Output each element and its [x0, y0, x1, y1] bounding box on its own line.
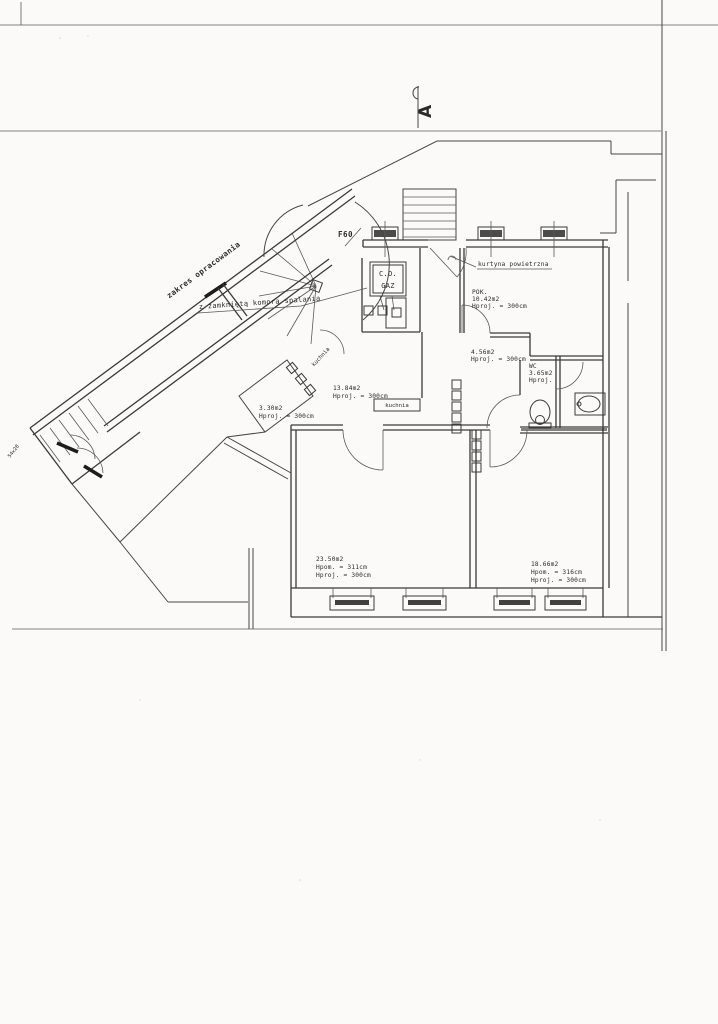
room-right-hpom: Hpom. = 316cm [531, 569, 582, 576]
doors [343, 248, 583, 470]
kitchen-label: 13.84m2 Hproj. = 300cm [333, 385, 388, 400]
wc-label: WC 3.65m2 Hproj. [529, 363, 553, 384]
wall-east [603, 240, 609, 588]
window-icon [330, 588, 374, 610]
plot-lines [72, 432, 291, 629]
room-right-label: 18.66m2 Hpom. = 316cm Hproj. = 300cm [531, 561, 586, 584]
room-left-area: 23.50m2 [316, 556, 344, 563]
flue-square [364, 306, 373, 315]
floor-plan-drawing: A [0, 0, 718, 1024]
diagonal-wing [30, 189, 355, 484]
stair-dim-label: 54x28 [7, 444, 21, 460]
store-room [239, 360, 316, 432]
wc-height: Hproj. [529, 377, 553, 384]
plot-boundary [72, 432, 291, 629]
section-marker: A [413, 86, 436, 128]
air-curtain-leader [448, 256, 476, 267]
flue-square [452, 413, 461, 422]
wall-mid-horizontal [291, 425, 490, 430]
boiler-unit-icon [386, 298, 406, 328]
corridor-flues: kuchnia [374, 380, 481, 472]
kitchen-tag-label: kuchnia [311, 347, 331, 369]
scanned-floor-plan-page: A [0, 0, 718, 1024]
north-windows [372, 221, 567, 257]
radiator-icon [541, 221, 567, 257]
pok-label: POK. 10.42m2 Hproj. = 300cm [472, 289, 527, 310]
pok-name: POK. [472, 289, 488, 296]
door-room-right [490, 430, 527, 467]
kitchen-area: 13.84m2 [333, 385, 361, 392]
store-label: 3.30m2 Hproj. = 300cm [259, 405, 314, 420]
wing-stair-treads [40, 399, 108, 462]
spiral-treads [259, 233, 316, 344]
pok-height: Hproj. = 300cm [472, 303, 527, 310]
stair-treads [403, 197, 456, 237]
scan-noise [59, 35, 601, 881]
door-room-left [343, 430, 383, 470]
south-windows [330, 588, 586, 610]
wall-room-divider [470, 430, 476, 588]
hall-label: 4.56m2 Hproj. = 300cm [471, 349, 526, 363]
window-icon [545, 588, 586, 610]
wall-rooms-west [291, 425, 296, 588]
wall-north [363, 240, 608, 247]
window-icon [403, 588, 446, 610]
pok-area: 10.42m2 [472, 296, 500, 303]
room-right-area: 18.66m2 [531, 561, 559, 568]
spiral-outer-arc [355, 202, 389, 320]
flue-square [392, 308, 401, 317]
sink-icon [575, 393, 605, 415]
store-area: 3.30m2 [259, 405, 283, 412]
flue-square [452, 391, 461, 400]
canopy-line [308, 141, 662, 206]
wing-inner-wall [104, 259, 332, 432]
hall-height: Hproj. = 300cm [471, 356, 526, 363]
room-left-hproj: Hproj. = 300cm [316, 572, 371, 579]
air-curtain-label: kurtyna powietrzna [478, 261, 549, 268]
section-label: A [416, 104, 436, 118]
boiler-room: C.O. GAZ [362, 258, 420, 332]
store-height: Hproj. = 300cm [259, 413, 314, 420]
wc-name: WC [529, 363, 537, 370]
wall-hall-left [420, 248, 422, 398]
store-room-walls [239, 360, 313, 432]
fire-door-label: F60 [338, 230, 353, 239]
right-border-line [662, 0, 666, 651]
kitchen-plate-label: kuchnia [385, 403, 409, 409]
exterior-stair [403, 189, 456, 240]
door-entrance [430, 248, 466, 277]
wc-fixtures [529, 393, 605, 428]
boiler-label-gaz: GAZ [381, 282, 395, 290]
room-left-label: 23.50m2 Hpom. = 311cm Hproj. = 300cm [316, 556, 371, 579]
toilet-icon [529, 400, 551, 428]
room-left-hpom: Hpom. = 311cm [316, 564, 367, 571]
wc-area: 3.65m2 [529, 370, 553, 377]
kitchen-height: Hproj. = 300cm [333, 393, 388, 400]
wing-outer-wall [30, 189, 355, 435]
wall-wc [520, 356, 560, 428]
radiator-icon [478, 221, 504, 257]
page-border-lines [0, 0, 718, 651]
room-right-hproj: Hproj. = 300cm [531, 577, 586, 584]
hall-area: 4.56m2 [471, 349, 495, 356]
window-icon [494, 588, 535, 610]
flue-square [452, 380, 461, 389]
flue-square [452, 402, 461, 411]
scope-label: zakres opracowania [165, 240, 242, 301]
wing-end-walls [30, 428, 140, 484]
door-wc [487, 395, 520, 428]
